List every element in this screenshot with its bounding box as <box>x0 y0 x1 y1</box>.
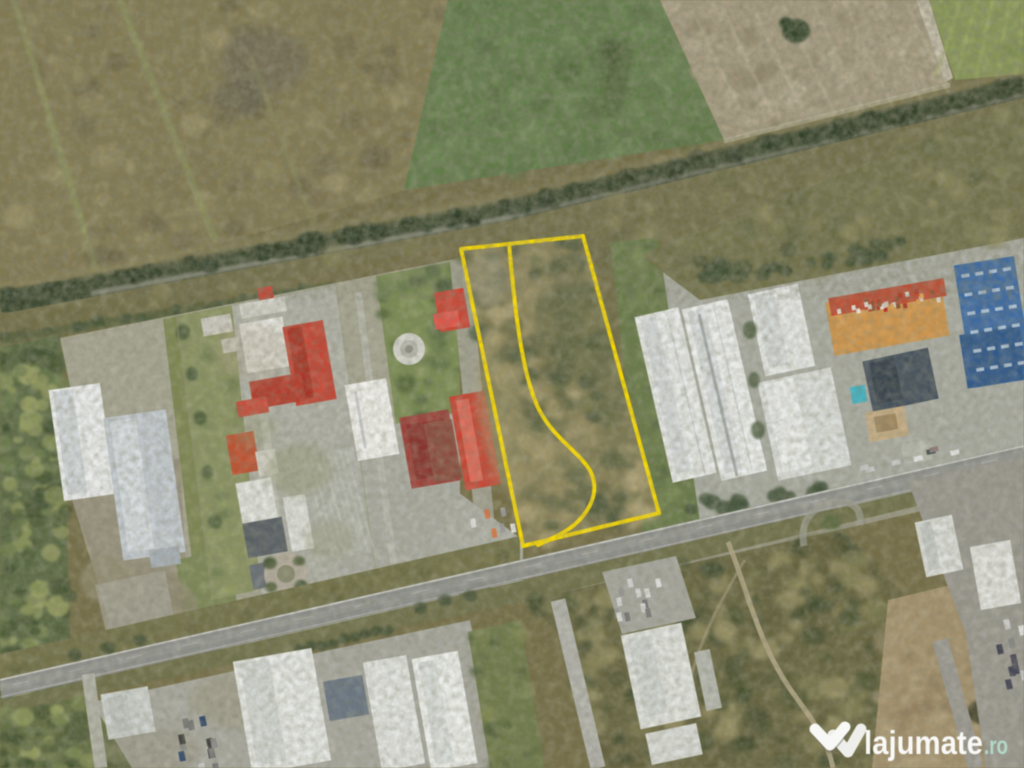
svg-text:lajumate: lajumate <box>864 724 983 761</box>
svg-text:.ro: .ro <box>984 732 1008 760</box>
